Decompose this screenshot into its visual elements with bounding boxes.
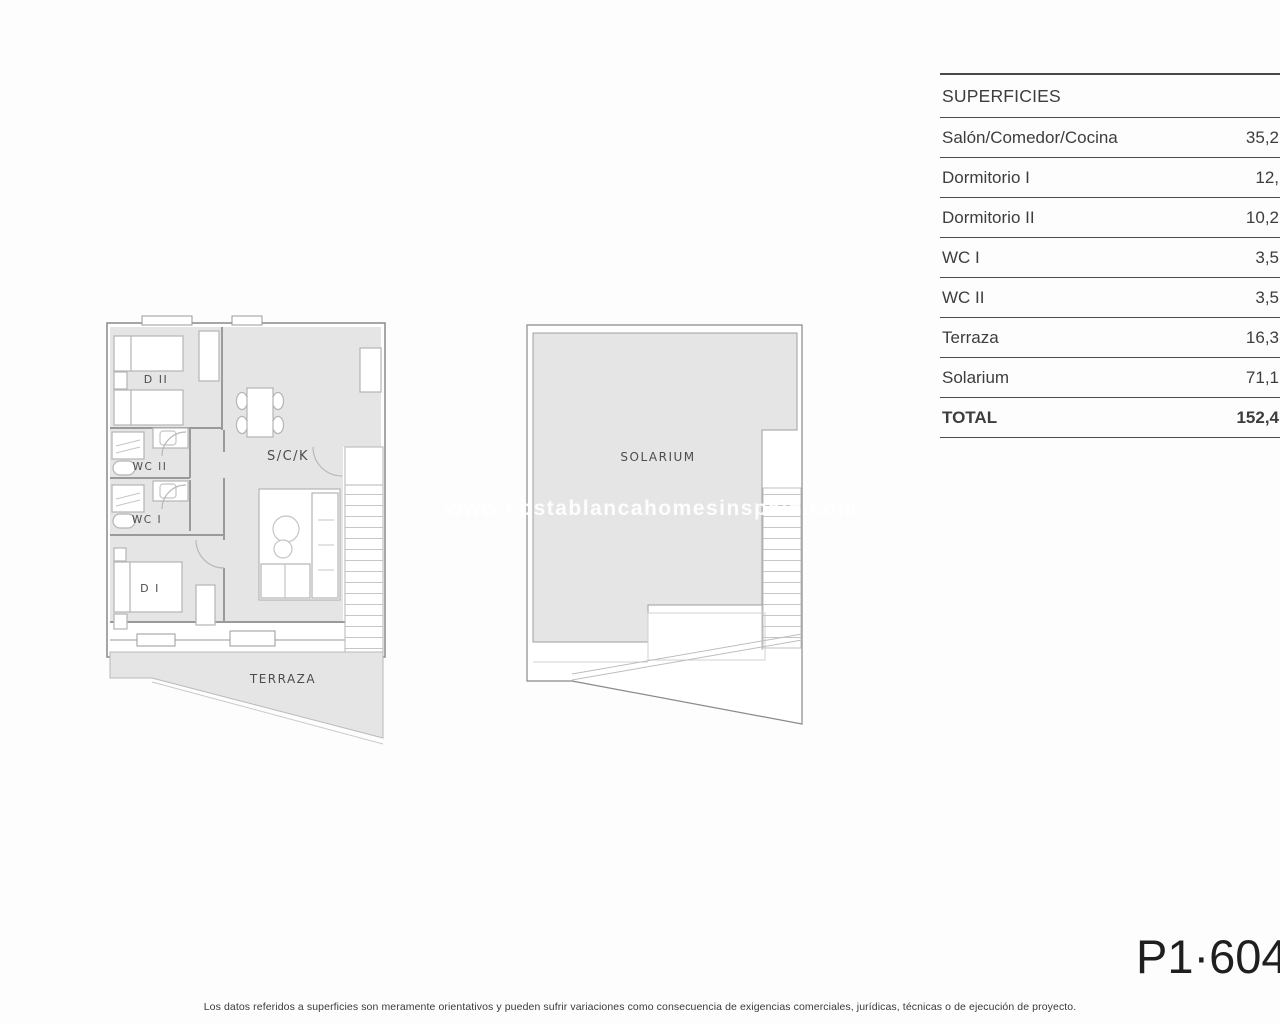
total-label: TOTAL bbox=[942, 408, 997, 428]
nightstand-icon bbox=[114, 614, 127, 629]
chair-icon bbox=[273, 417, 284, 434]
row-label: Salón/Comedor/Cocina bbox=[942, 128, 1118, 148]
table-row: Solarium 71,1 bbox=[940, 358, 1280, 398]
page: D II WC II WC I D I S/C/K TERRAZA SOLARI… bbox=[0, 0, 1280, 1024]
kitchen-living-block bbox=[259, 489, 340, 600]
nightstand-icon bbox=[114, 548, 126, 561]
solarium-floor bbox=[533, 333, 797, 642]
chair-icon bbox=[273, 393, 284, 410]
table-total-row: TOTAL 152,4 bbox=[940, 398, 1280, 438]
row-value: 3,5 bbox=[1255, 248, 1279, 268]
surfaces-table: SUPERFICIES Salón/Comedor/Cocina 35,2 Do… bbox=[940, 73, 1280, 438]
room-label-sck: S/C/K bbox=[267, 449, 309, 464]
room-label-wc2: WC II bbox=[133, 461, 168, 473]
watermark: www.costablancahomesinspain.com bbox=[446, 497, 858, 521]
surfaces-table-header: SUPERFICIES bbox=[940, 75, 1280, 118]
round-table-icon bbox=[274, 540, 292, 558]
window-notch bbox=[142, 316, 192, 325]
bed-icon bbox=[114, 390, 183, 425]
row-label: Dormitorio I bbox=[942, 168, 1030, 188]
table-row: Dormitorio I 12, bbox=[940, 158, 1280, 198]
row-value: 71,1 bbox=[1246, 368, 1279, 388]
bed-icon bbox=[114, 336, 183, 371]
wardrobe-icon bbox=[196, 585, 215, 625]
row-label: WC II bbox=[942, 288, 985, 308]
window-notch bbox=[230, 631, 275, 646]
disclaimer: Los datos referidos a superficies son me… bbox=[0, 1001, 1280, 1013]
room-label-terraza: TERRAZA bbox=[249, 672, 316, 686]
row-label: Dormitorio II bbox=[942, 208, 1035, 228]
room-label-d2: D II bbox=[144, 373, 168, 386]
row-label: Terraza bbox=[942, 328, 999, 348]
window-notch bbox=[232, 316, 262, 325]
row-value: 10,2 bbox=[1246, 208, 1279, 228]
room-label-d1: D I bbox=[140, 582, 160, 595]
table-row: WC II 3,5 bbox=[940, 278, 1280, 318]
total-value: 152,4 bbox=[1236, 408, 1279, 428]
staircase-icon bbox=[345, 447, 383, 652]
apartment-floor-step bbox=[343, 430, 381, 447]
row-value: 16,3 bbox=[1246, 328, 1279, 348]
row-label: Solarium bbox=[942, 368, 1009, 388]
window-notch bbox=[137, 634, 175, 646]
round-table-icon bbox=[273, 516, 299, 542]
terrace-area bbox=[110, 652, 383, 738]
floor-plan-apartment: D II WC II WC I D I S/C/K TERRAZA bbox=[107, 316, 385, 744]
chair-icon bbox=[237, 417, 248, 434]
row-value: 12, bbox=[1255, 168, 1279, 188]
floor-plans-drawing: D II WC II WC I D I S/C/K TERRAZA SOLARI… bbox=[90, 310, 830, 760]
row-value: 35,2 bbox=[1246, 128, 1279, 148]
floor-plan-solarium: SOLARIUM bbox=[527, 325, 802, 724]
table-row: WC I 3,5 bbox=[940, 238, 1280, 278]
row-value: 3,5 bbox=[1255, 288, 1279, 308]
closet-icon bbox=[360, 348, 381, 392]
chair-icon bbox=[237, 393, 248, 410]
table-row: Salón/Comedor/Cocina 35,2 bbox=[940, 118, 1280, 158]
plan-code: P1·604 bbox=[1136, 929, 1280, 984]
table-row: Terraza 16,3 bbox=[940, 318, 1280, 358]
wardrobe-icon bbox=[199, 331, 219, 381]
row-label: WC I bbox=[942, 248, 980, 268]
room-label-wc1: WC I bbox=[132, 514, 162, 526]
nightstand-icon bbox=[114, 372, 127, 389]
surfaces-table-title: SUPERFICIES bbox=[942, 86, 1061, 107]
room-label-solarium: SOLARIUM bbox=[620, 450, 695, 464]
table-row: Dormitorio II 10,2 bbox=[940, 198, 1280, 238]
